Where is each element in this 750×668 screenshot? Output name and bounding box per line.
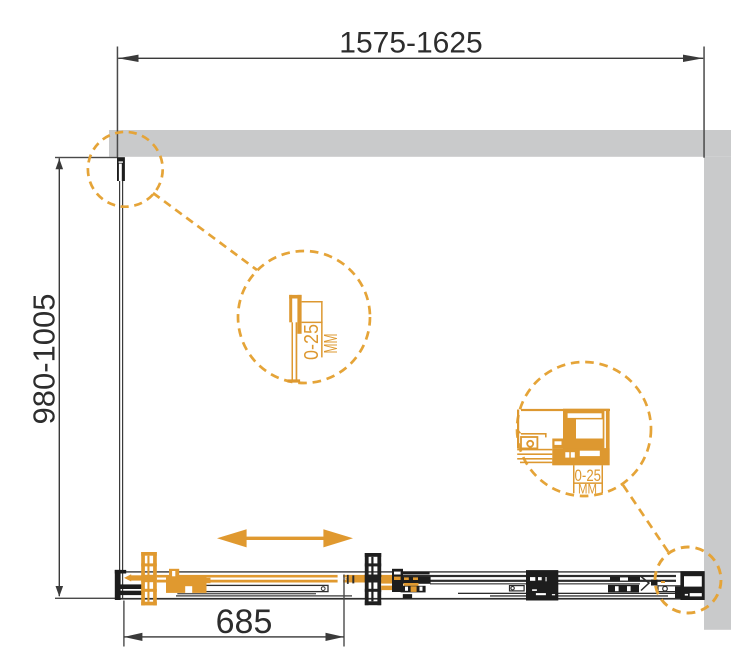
svg-text:1575-1625: 1575-1625 (339, 27, 482, 60)
svg-text:MM: MM (321, 334, 341, 354)
svg-text:MM: MM (578, 482, 597, 497)
svg-text:0-25: 0-25 (301, 324, 323, 360)
svg-text:685: 685 (216, 603, 273, 641)
svg-text:980-1005: 980-1005 (27, 293, 62, 424)
